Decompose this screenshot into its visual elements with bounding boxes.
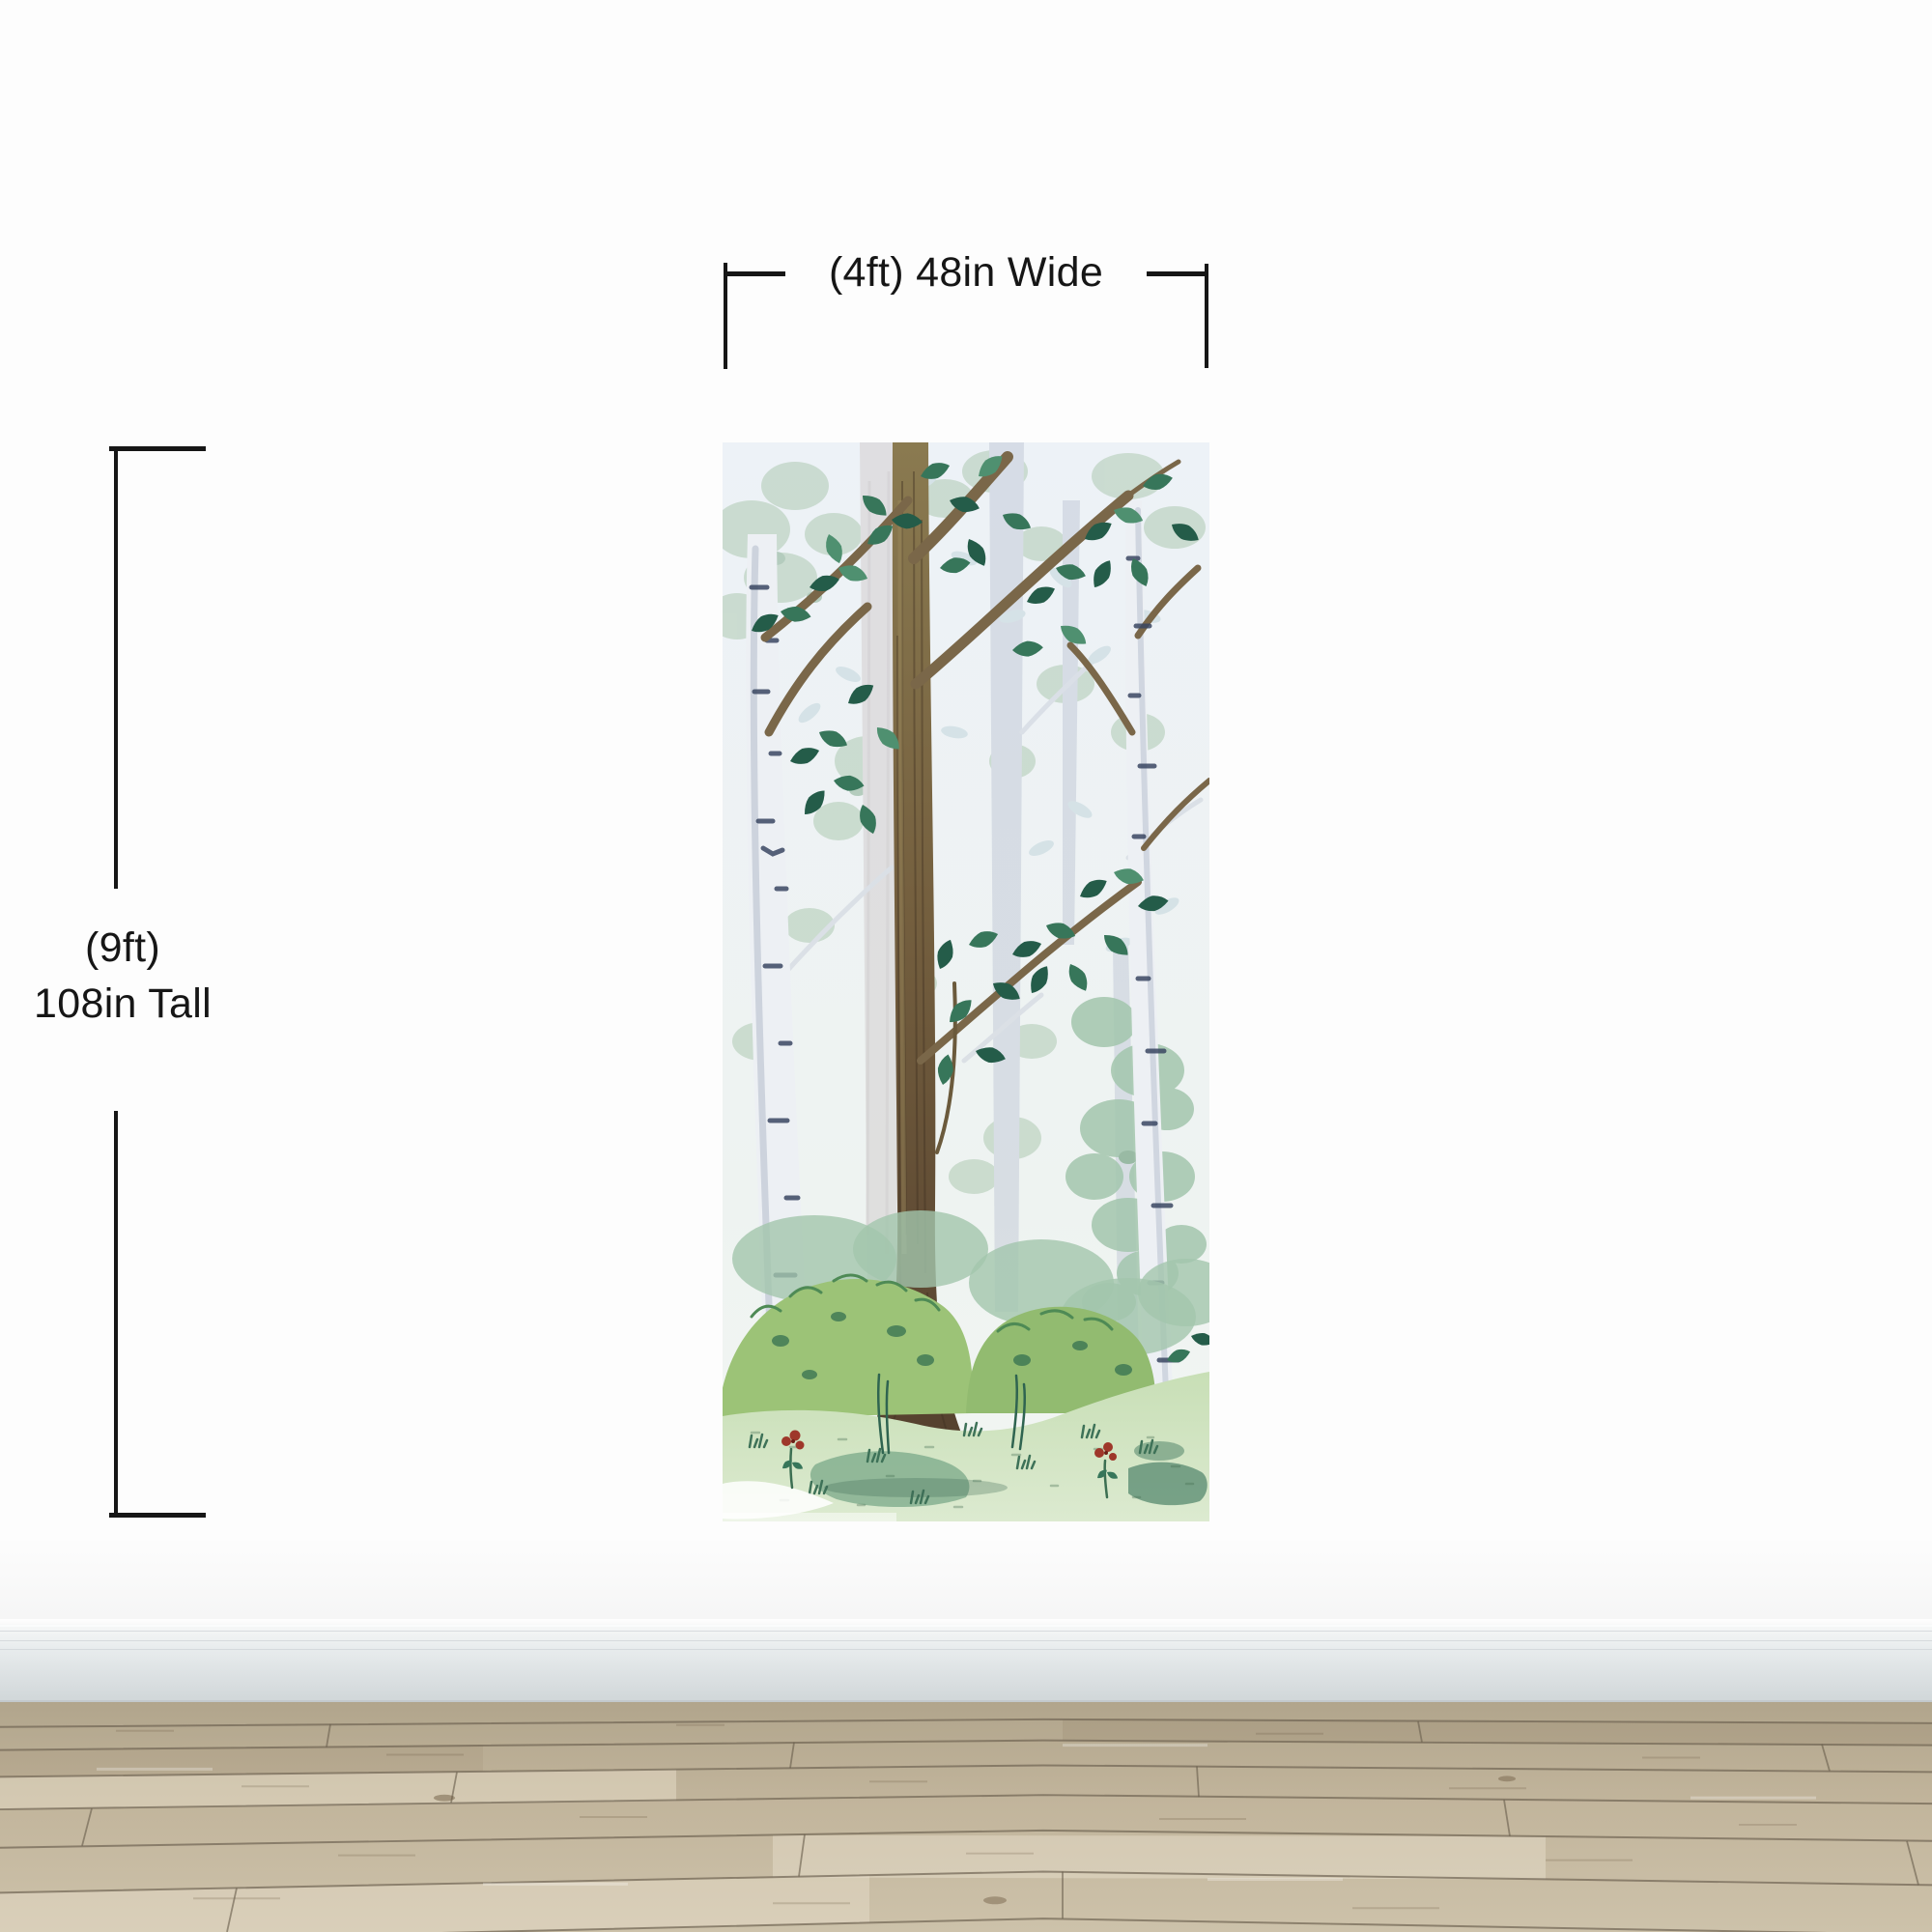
baseboard-groove (0, 1640, 1932, 1641)
height-dimension-label: (9ft) 108in Tall (16, 920, 229, 1032)
baseboard (0, 1619, 1932, 1702)
height-line-lower (114, 1111, 118, 1517)
baseboard-groove (0, 1649, 1932, 1650)
height-bottom-tick (109, 1513, 206, 1518)
wood-floor-svg (0, 1702, 1932, 1932)
height-dimension-label-line2: 108in Tall (16, 976, 229, 1032)
wood-floor (0, 1702, 1932, 1932)
watercolor-forest-mural-image (723, 442, 1209, 1521)
wood-knot (983, 1896, 1007, 1904)
mural-svg (723, 442, 1209, 1521)
wall-shadow (0, 1536, 1932, 1619)
height-line-upper (114, 446, 118, 889)
height-top-tick (109, 446, 206, 451)
width-dimension-label: (4ft) 48in Wide (723, 249, 1209, 297)
baseboard-groove (0, 1631, 1932, 1632)
height-dimension-label-line1: (9ft) (16, 920, 229, 976)
product-mockup-canvas: (4ft) 48in Wide (9ft) 108in Tall (0, 0, 1932, 1932)
baseboard-highlight (0, 1625, 1932, 1627)
wood-knot (1498, 1776, 1516, 1781)
wood-knot (434, 1795, 455, 1802)
